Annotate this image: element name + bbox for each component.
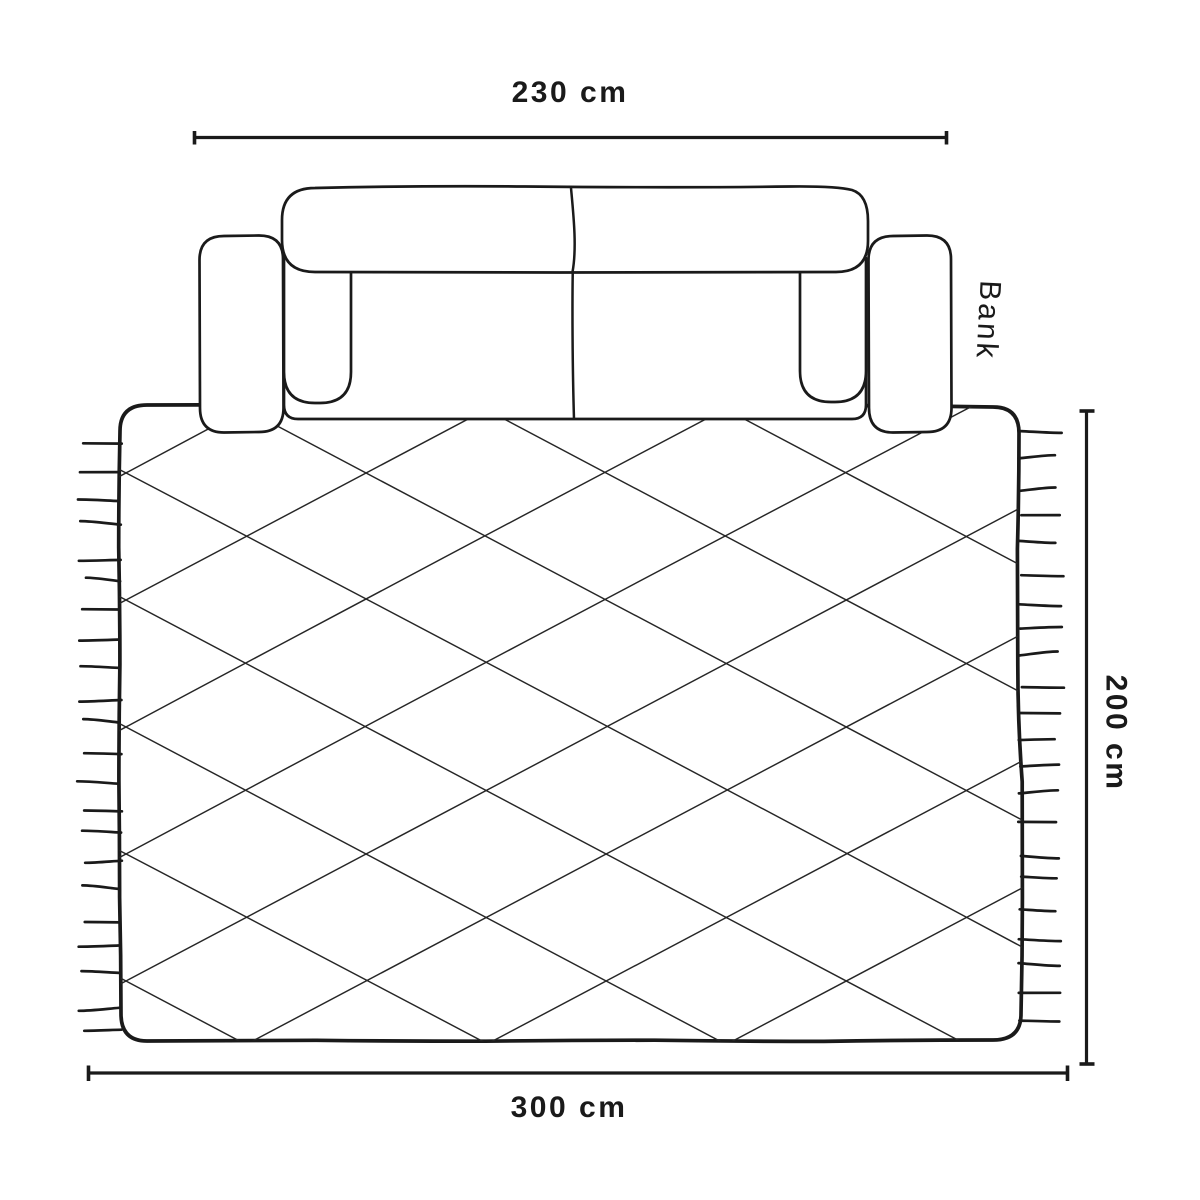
svg-text:300 cm: 300 cm xyxy=(511,1091,628,1124)
svg-text:200 cm: 200 cm xyxy=(1100,675,1133,792)
svg-text:Bank: Bank xyxy=(969,279,1006,361)
svg-text:230 cm: 230 cm xyxy=(512,76,629,109)
